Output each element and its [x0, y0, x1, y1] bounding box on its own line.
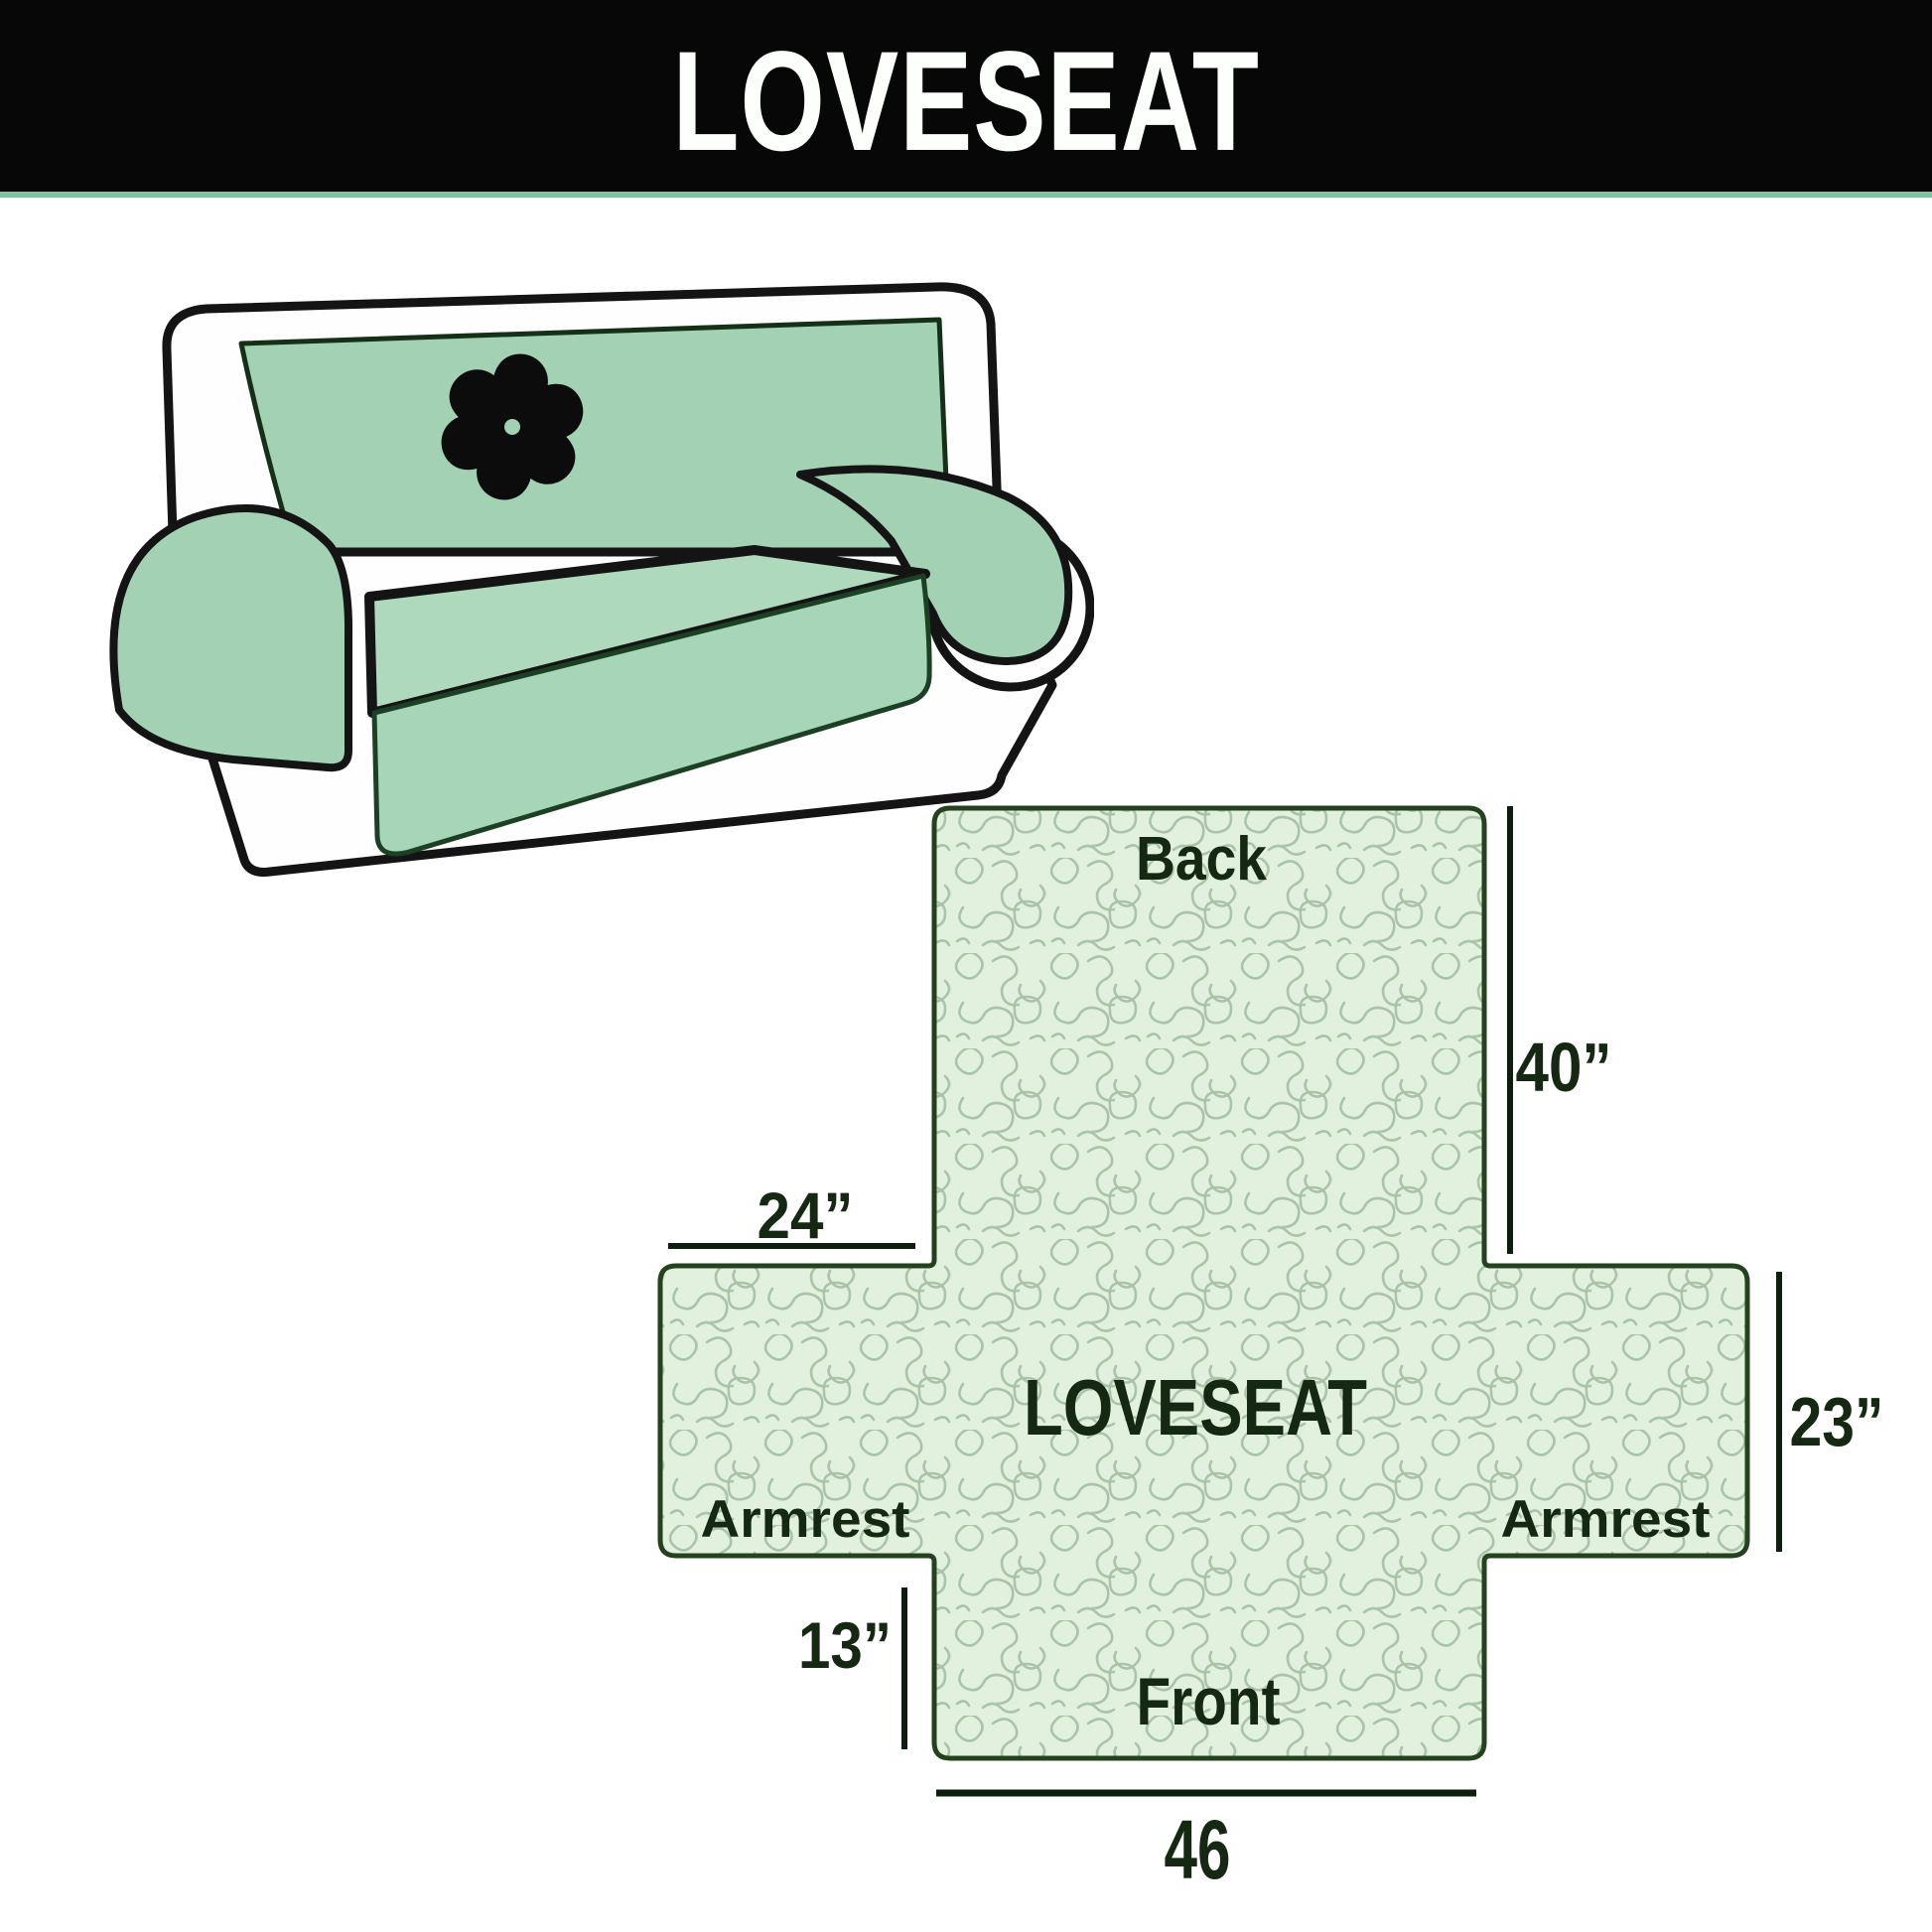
- banner-title: LOVESEAT: [672, 19, 1259, 173]
- center-label: LOVESEAT: [1024, 1363, 1367, 1451]
- dim-front-height-label: 13”: [798, 1608, 892, 1682]
- banner-underline: [0, 192, 1932, 198]
- page: LOVESEAT: [0, 0, 1932, 1932]
- sofa-left-armrest-cover: [113, 508, 348, 767]
- back-label: Back: [1136, 825, 1267, 894]
- armrest-left-label: Armrest: [701, 1490, 910, 1549]
- dim-side-height-label: 23”: [1790, 1383, 1884, 1460]
- dim-armrest-width-label: 24”: [758, 1178, 854, 1252]
- front-label: Front: [1137, 1664, 1281, 1739]
- cover-dimension-diagram: Back LOVESEAT Armrest Armrest Front 40” …: [596, 784, 1932, 1932]
- title-banner: LOVESEAT: [0, 0, 1932, 192]
- dim-front-width-label: 46: [1165, 1803, 1231, 1896]
- dim-back-height-label: 40”: [1516, 1029, 1612, 1106]
- armrest-right-label: Armrest: [1501, 1490, 1711, 1549]
